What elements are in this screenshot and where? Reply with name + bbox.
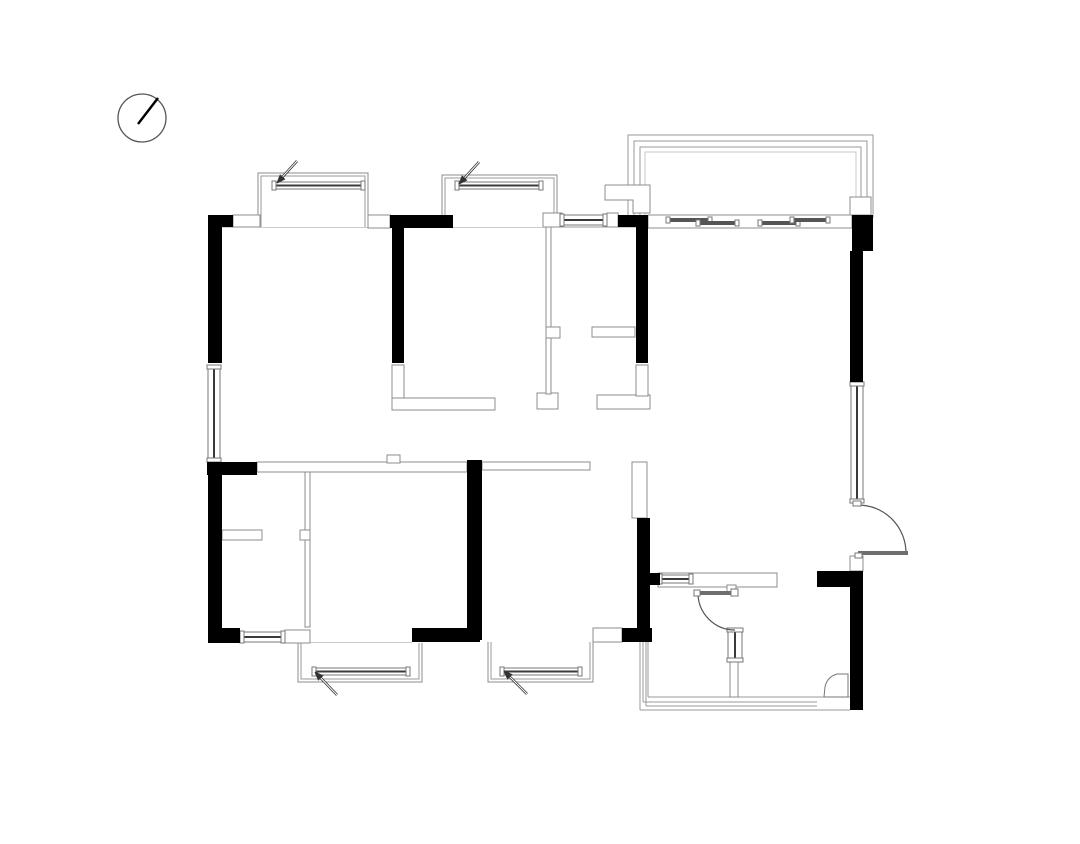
doors xyxy=(694,501,908,630)
entry-door xyxy=(853,501,908,558)
bathroom-door xyxy=(694,589,738,630)
bathroom-details xyxy=(824,674,848,697)
floor-plan-canvas xyxy=(0,0,1080,844)
wall-outlines xyxy=(222,197,871,697)
balcony xyxy=(605,135,873,218)
floor-plan-page xyxy=(0,0,1080,844)
north-arrow xyxy=(118,94,166,142)
